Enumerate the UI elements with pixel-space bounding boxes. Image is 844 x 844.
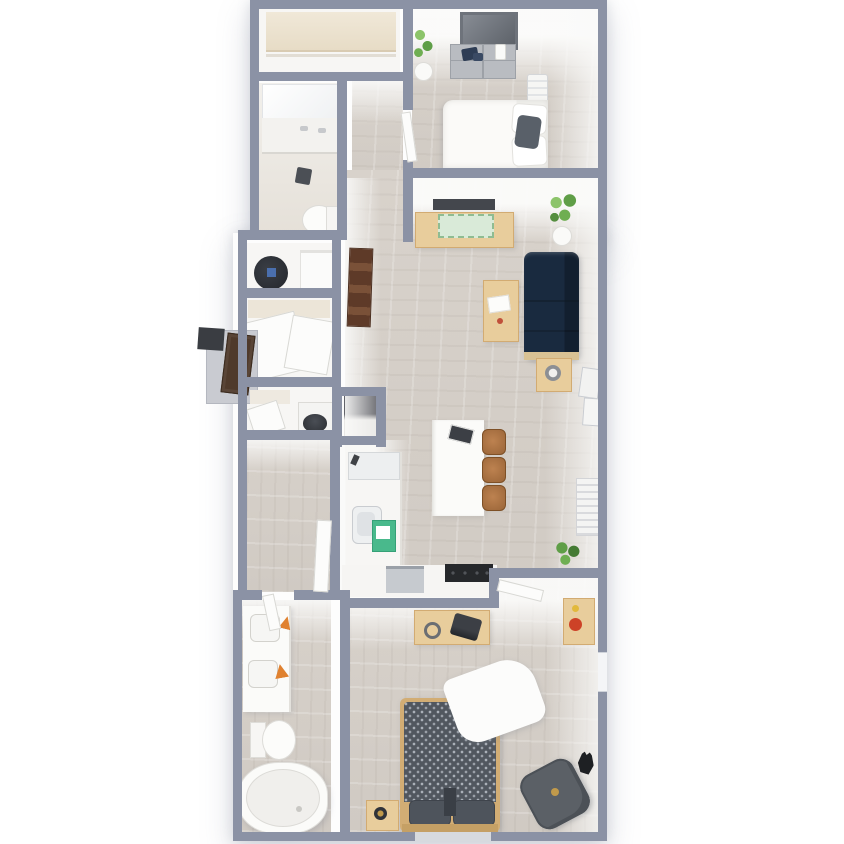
wall-bathroom-1-right (337, 72, 347, 238)
entry-mat (197, 327, 224, 351)
plant-living-bottom (550, 536, 584, 570)
vacuum-button (267, 268, 276, 277)
closet-rod (266, 54, 396, 57)
bed-2-pillow-right (453, 800, 495, 826)
wall-laundry-bottom (238, 430, 334, 440)
wall-utility-right (332, 240, 341, 387)
dresser-deco-blue-2 (473, 53, 483, 61)
wall-left-bottom (233, 590, 242, 841)
dishwasher (386, 566, 424, 593)
dark-closet-floor (344, 396, 376, 436)
bathroom-1-vanity-mirror (262, 84, 346, 120)
toilet-2-bowl (262, 720, 296, 760)
hallway-upper-floor (352, 72, 403, 182)
bathroom-1-towel (295, 167, 313, 185)
bathroom-2-sink-2 (248, 660, 278, 688)
coffee-table-book (487, 295, 511, 314)
wardrobe-door-right (284, 315, 337, 376)
bar-stool-2 (482, 457, 506, 483)
table-lamp (545, 365, 561, 381)
bathroom-1-faucet-2 (318, 128, 326, 133)
bed-1-accent-pillow (514, 114, 542, 149)
wall-left-top (250, 0, 259, 240)
wall-top (250, 0, 607, 9)
nightstand-lamp (374, 807, 387, 820)
wall-right (598, 0, 607, 841)
plant-pot-bedroom-1 (414, 62, 433, 81)
wall-bedroom-2-left (340, 590, 350, 841)
bathtub-basin (246, 769, 320, 827)
wall-dark-closet-bottom (335, 436, 386, 445)
sofa-seam (524, 300, 579, 302)
wall-utility-bottom (238, 288, 341, 298)
closet-shelf (266, 12, 396, 52)
bar-stool-1 (482, 429, 506, 455)
dish-rack-inner (376, 526, 390, 539)
bedroom-1-dresser (450, 44, 516, 79)
sofa (524, 252, 579, 360)
bed-2-runner (444, 788, 456, 816)
console-tray (438, 214, 494, 238)
window-bedroom-2-right (598, 652, 607, 692)
bar-stool-3 (482, 485, 506, 511)
wall-tv (433, 199, 495, 210)
window-bedroom-2-bottom (415, 832, 491, 841)
wall-closet-bottom (250, 72, 403, 81)
wall-bedroom-1-bottom (412, 168, 607, 178)
wall-bedroom-2-top-left (340, 598, 497, 608)
ladder-shelf (347, 248, 374, 328)
wall-bathroom-1-bottom (238, 230, 347, 240)
armchair-button (551, 788, 559, 796)
art-yellow-dot (572, 605, 579, 612)
bathroom-1-faucet (300, 126, 308, 131)
desk-ring (424, 622, 441, 639)
wall-bedroom-2-top-right (489, 568, 607, 578)
dresser-bottle (495, 44, 506, 60)
wall-bathroom-2-top-left (233, 590, 262, 600)
wall-left-mid (238, 231, 247, 600)
bathroom-1-vanity-counter (262, 118, 344, 154)
art-red-circle (569, 618, 582, 631)
wall-wardrobe-bottom (238, 377, 341, 387)
coffee-table-deco (497, 318, 503, 324)
bed-2-headboard (402, 824, 498, 832)
bathtub-drain (296, 806, 302, 812)
floor-plan (0, 0, 844, 844)
wall-bedroom-1-left-upper (403, 0, 413, 110)
radiator (576, 478, 600, 536)
stove (445, 564, 493, 582)
plant-pot-living (552, 226, 572, 246)
